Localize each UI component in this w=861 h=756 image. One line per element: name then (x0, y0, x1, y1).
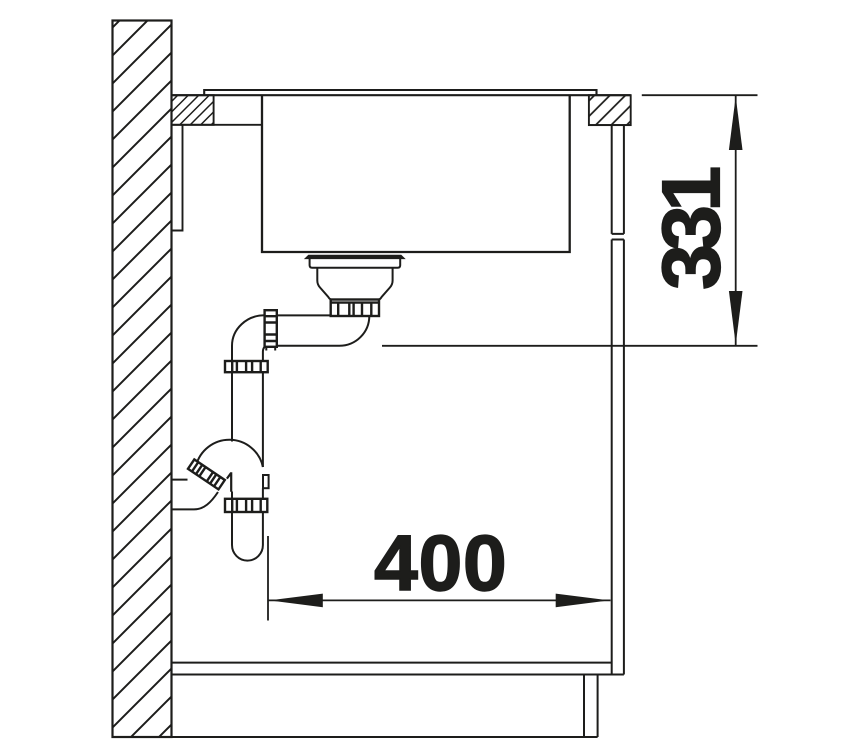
svg-text:331: 331 (645, 168, 738, 290)
svg-text:400: 400 (374, 518, 507, 607)
